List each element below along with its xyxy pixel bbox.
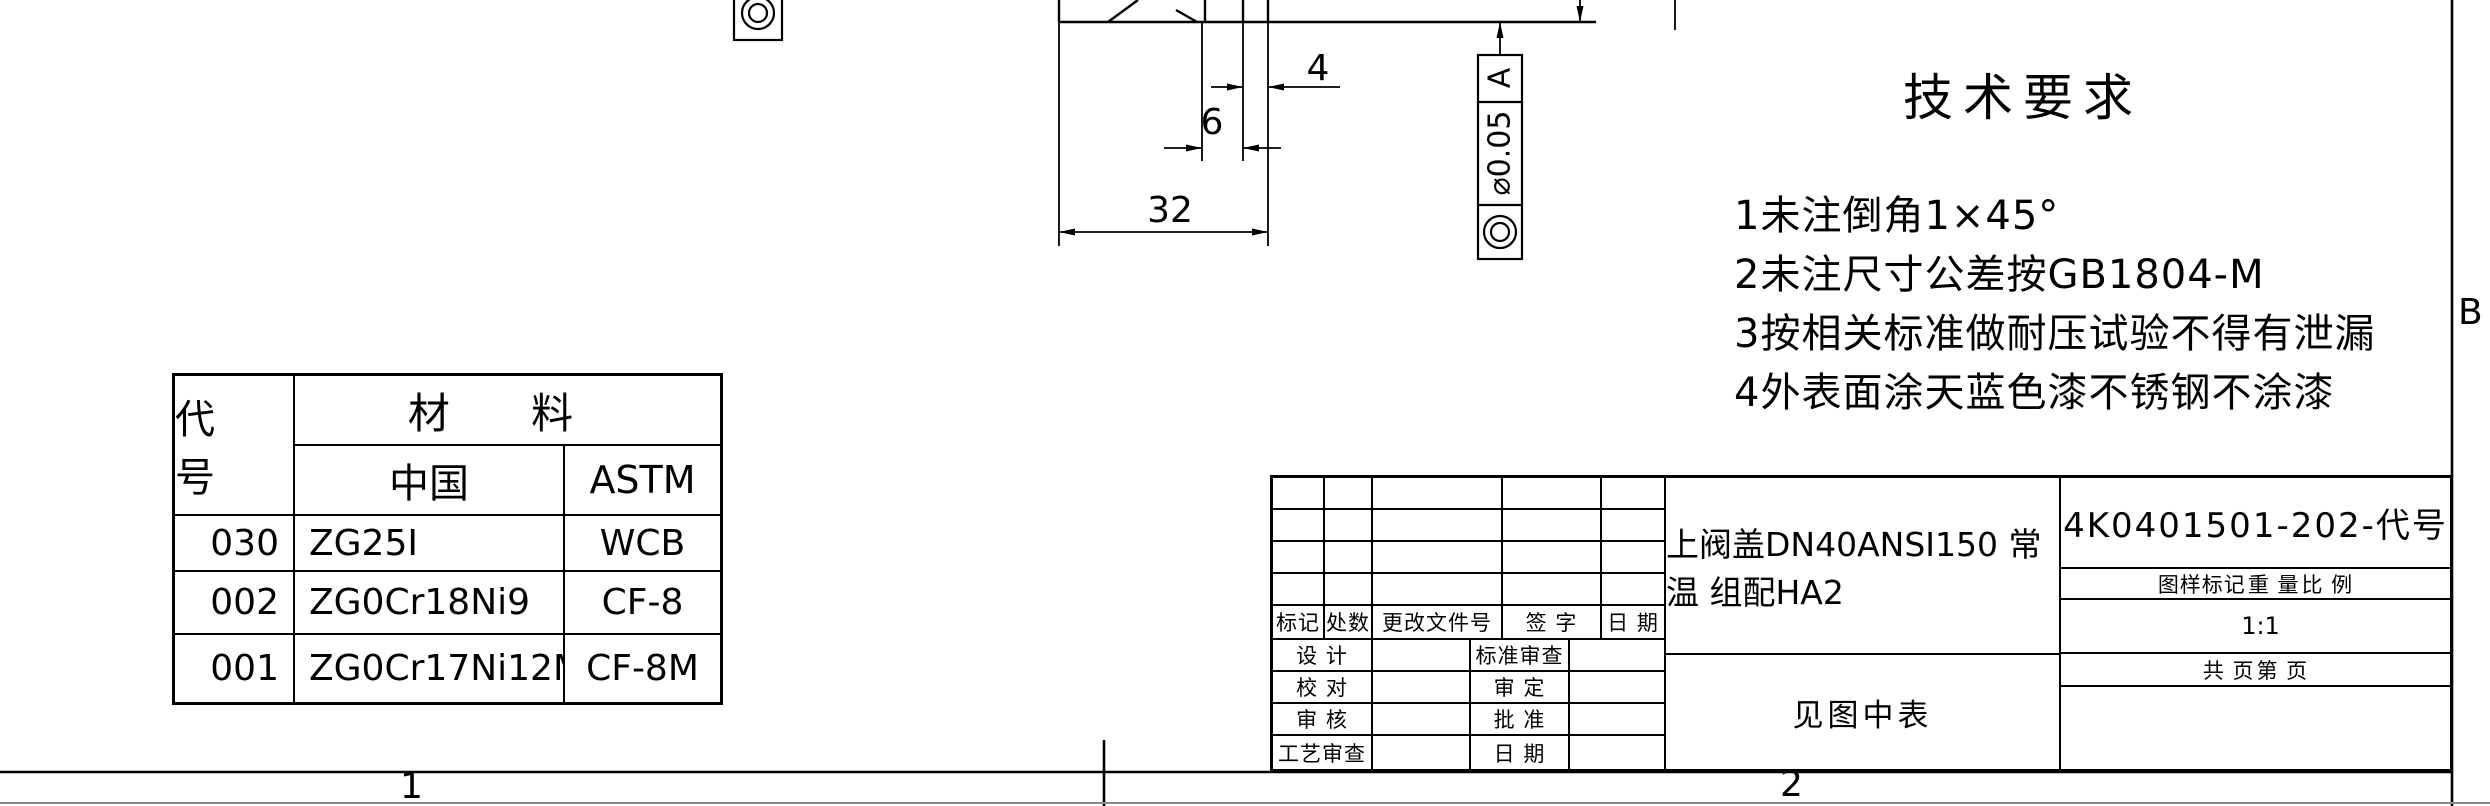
- part-outline: [1059, 0, 1596, 22]
- revision-cell: [1273, 510, 1323, 540]
- rev-header-mark: 标记: [1273, 606, 1323, 638]
- revision-cell: [1373, 510, 1501, 540]
- materials-header: 材 料: [295, 376, 720, 444]
- materials-astm-header: ASTM: [565, 446, 720, 514]
- concentricity-symbol-box: [734, 0, 782, 40]
- revision-cell: [1273, 542, 1323, 572]
- weight-header: 重 量: [2248, 569, 2300, 598]
- revision-cell: [1503, 478, 1600, 508]
- revision-cell: [1503, 574, 1600, 604]
- material-row-china: ZG0Cr18Ni9: [295, 572, 563, 633]
- revision-cell: [1273, 574, 1323, 604]
- dimension-6-lines: [1164, 145, 1281, 152]
- title-block: 标记 处数 更改文件号 签 字 日 期 设 计 标准审查 校 对 审 定 审 核…: [1270, 475, 2453, 772]
- revision-cell: [1325, 478, 1371, 508]
- dimension-32-label: 32: [1147, 190, 1193, 231]
- revision-cell: [1602, 574, 1664, 604]
- revision-cell: [1373, 574, 1501, 604]
- sig-label-process-review: 工艺审查: [1273, 736, 1371, 769]
- signature-cell: [1570, 704, 1664, 734]
- signature-cell: [1570, 672, 1664, 702]
- sig-label-proofread: 校 对: [1273, 672, 1371, 702]
- material-row-china: ZG0Cr17Ni12Mo2: [295, 635, 563, 702]
- signature-cell: [1373, 704, 1469, 734]
- signature-cell: [1570, 736, 1664, 769]
- title-block-right: 4K0401501-202-代号 图样标记 重 量 比 例 1:1 共 页: [2061, 478, 2450, 769]
- sig-label-standard-review: 标准审查: [1471, 640, 1568, 670]
- page-number: 第 页: [2257, 655, 2309, 685]
- fcf-leader: [1497, 22, 1504, 55]
- dimension-4-label: 4: [1307, 48, 1330, 89]
- tech-requirement-item: 4外表面涂天蓝色漆不锈钢不涂漆: [1734, 360, 2334, 418]
- materials-china-header: 中国: [295, 446, 563, 514]
- signature-cell: [1373, 672, 1469, 702]
- revision-cell: [1602, 510, 1664, 540]
- sig-label-review: 审 核: [1273, 704, 1371, 734]
- revision-cell: [1325, 574, 1371, 604]
- zone-letter-b: B: [2458, 292, 2483, 333]
- revision-cell: [1602, 542, 1664, 572]
- dimension-6-label: 6: [1201, 102, 1224, 143]
- revision-cell: [1602, 478, 1664, 508]
- material-reference: 见图中表: [1666, 655, 2059, 769]
- scale-header: 比 例: [2302, 569, 2354, 598]
- rev-header-date: 日 期: [1602, 606, 1664, 638]
- signature-table: 设 计 标准审查 校 对 审 定 审 核 批 准 工艺审查 日 期: [1273, 640, 1664, 769]
- title-block-middle: 上阀盖DN40ANSI150 常温 组配HA2 见图中表: [1666, 478, 2059, 769]
- material-row-code: 002: [175, 572, 293, 633]
- material-row-code: 001: [175, 635, 293, 702]
- zone-number-1: 1: [400, 766, 423, 806]
- materials-code-header: 代 号: [175, 376, 293, 514]
- revision-cell: [1503, 510, 1600, 540]
- sig-label-approve: 批 准: [1471, 704, 1568, 734]
- sig-label-date: 日 期: [1471, 736, 1568, 769]
- drawing-sheet: 技术要求 1未注倒角1×45° 2未注尺寸公差按GB1804-M 3按相关标准做…: [0, 0, 2490, 806]
- rev-header-count: 处数: [1325, 606, 1371, 638]
- revision-cell: [1373, 478, 1501, 508]
- signature-cell: [1570, 640, 1664, 670]
- material-row-astm: WCB: [565, 516, 720, 570]
- material-row-astm: CF-8: [565, 572, 720, 633]
- tech-requirement-item: 2未注尺寸公差按GB1804-M: [1734, 242, 2265, 300]
- material-row-china: ZG25I: [295, 516, 563, 570]
- sig-label-design: 设 计: [1273, 640, 1371, 670]
- title-block-empty-cell: [2061, 687, 2450, 769]
- fcf-datum-label: A: [1483, 68, 1518, 89]
- revision-cell: [1325, 542, 1371, 572]
- signature-cell: [1373, 640, 1469, 670]
- part-name: 上阀盖DN40ANSI150 常温 组配HA2: [1666, 478, 2059, 653]
- scale-value: 1:1: [2241, 612, 2280, 640]
- drawing-number: 4K0401501-202-代号: [2061, 478, 2450, 567]
- rev-header-signature: 签 字: [1503, 606, 1600, 638]
- material-row-astm: CF-8M: [565, 635, 720, 702]
- rev-header-change-doc: 更改文件号: [1373, 606, 1501, 638]
- fcf-tolerance-label: ⌀0.05: [1483, 111, 1518, 196]
- tech-requirement-item: 1未注倒角1×45°: [1734, 183, 2059, 241]
- sig-label-examine-approve: 审 定: [1471, 672, 1568, 702]
- stamp-header: 图样标记: [2158, 569, 2246, 598]
- signature-cell: [1373, 736, 1469, 769]
- concentricity-icon: [1484, 216, 1516, 248]
- revision-cell: [1325, 510, 1371, 540]
- pages-total: 共 页: [2203, 655, 2255, 685]
- tech-requirement-item: 3按相关标准做耐压试验不得有泄漏: [1734, 301, 2375, 359]
- revision-cell: [1373, 542, 1501, 572]
- vertical-dimension-arrow: [1577, 0, 1676, 30]
- revision-cell: [1503, 542, 1600, 572]
- material-row-code: 030: [175, 516, 293, 570]
- revision-table: 标记 处数 更改文件号 签 字 日 期: [1273, 478, 1664, 638]
- revision-cell: [1273, 478, 1323, 508]
- materials-table: 代 号 材 料 中国 ASTM 030 ZG25I WCB 002 ZG0Cr1…: [172, 373, 723, 705]
- tech-requirements-title: 技术要求: [1903, 58, 2143, 130]
